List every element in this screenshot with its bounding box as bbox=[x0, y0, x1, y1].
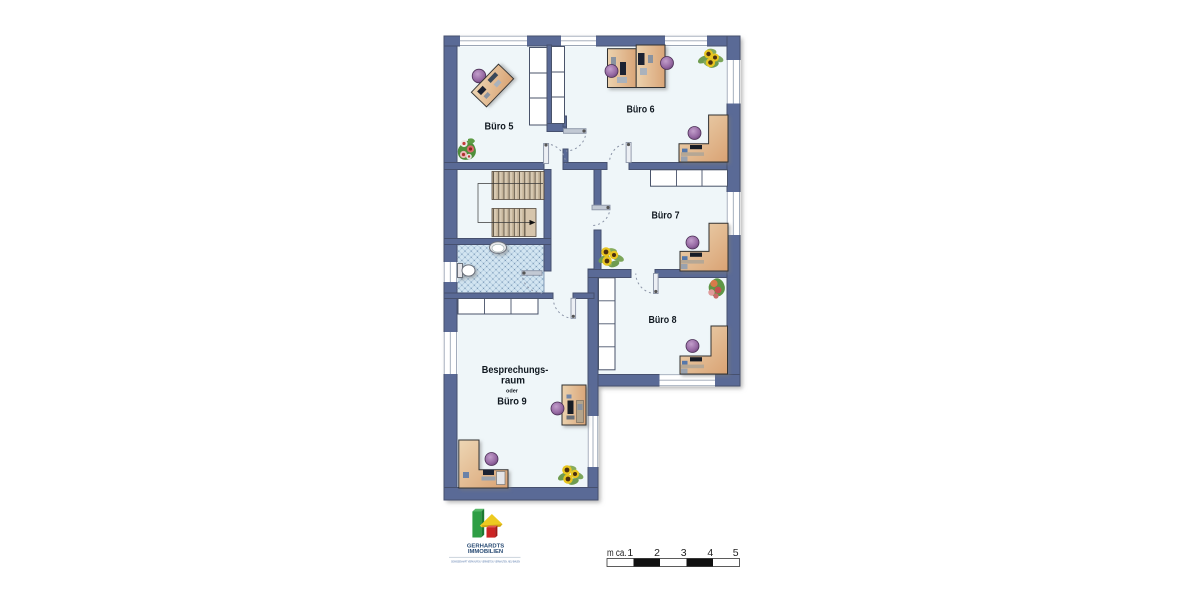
svg-text:5: 5 bbox=[733, 547, 739, 559]
svg-text:IMMOBILIEN: IMMOBILIEN bbox=[468, 549, 503, 555]
svg-text:3: 3 bbox=[681, 547, 687, 559]
svg-text:2: 2 bbox=[654, 547, 660, 559]
svg-text:1: 1 bbox=[627, 547, 633, 559]
svg-text:Büro 6: Büro 6 bbox=[627, 104, 655, 116]
svg-text:Büro 5: Büro 5 bbox=[485, 121, 514, 133]
svg-text:m ca.: m ca. bbox=[607, 548, 627, 559]
svg-text:Besprechungs-: Besprechungs- bbox=[482, 365, 549, 376]
svg-text:GEWISSENHAFT VERKAUFEN, VERMIE: GEWISSENHAFT VERKAUFEN, VERMIETEN, VERWA… bbox=[451, 559, 520, 563]
svg-text:oder: oder bbox=[506, 389, 519, 395]
svg-text:Büro 8: Büro 8 bbox=[649, 314, 677, 326]
svg-text:Büro 7: Büro 7 bbox=[652, 210, 680, 222]
svg-text:4: 4 bbox=[707, 547, 713, 559]
svg-text:Büro 9: Büro 9 bbox=[497, 396, 527, 408]
svg-text:raum: raum bbox=[501, 376, 525, 387]
